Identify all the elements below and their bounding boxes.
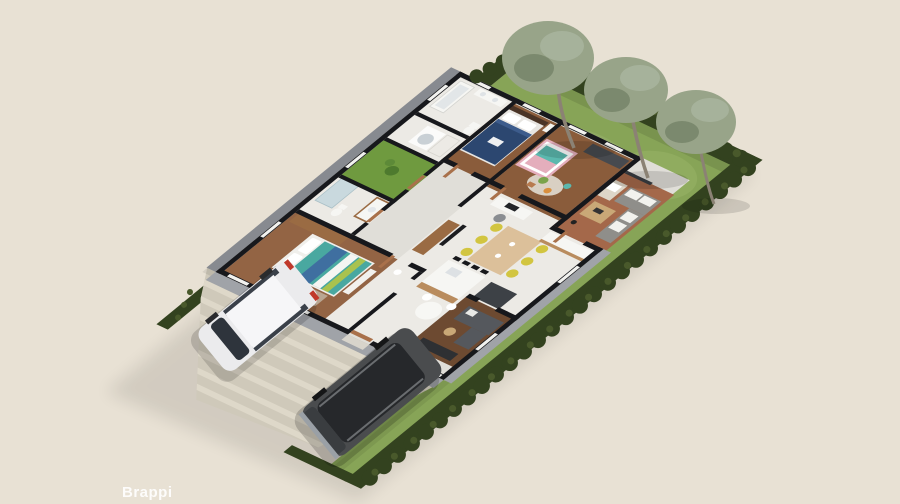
tree-shadow [612, 171, 688, 189]
canopy-light [691, 98, 729, 122]
canopy [502, 21, 594, 95]
tree-shadow [536, 141, 616, 159]
canopy-shade [514, 54, 554, 82]
canopy-shade [665, 121, 699, 143]
watermark: Brappi [122, 484, 173, 501]
floor-plan-render: Brappi [0, 0, 900, 504]
canopy-light [540, 31, 584, 61]
tree-shadow [682, 198, 750, 214]
canopy-light [620, 65, 660, 91]
canopy-shade [594, 88, 630, 112]
canopy [584, 57, 668, 123]
canopy [656, 90, 736, 154]
